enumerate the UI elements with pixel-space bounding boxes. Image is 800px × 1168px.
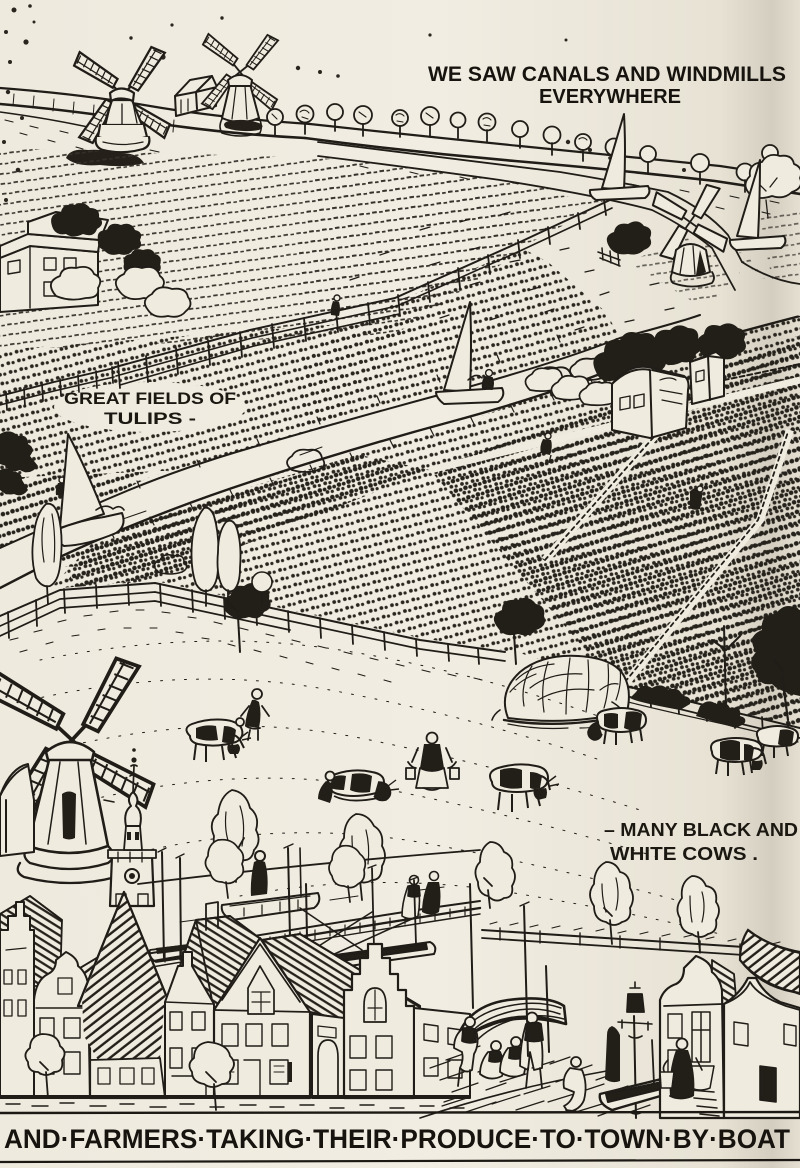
svg-text:TULIPS -: TULIPS - [104, 409, 196, 428]
svg-text:WE SAW CANALS AND WINDMILLS: WE SAW CANALS AND WINDMILLS [428, 63, 786, 86]
svg-text:– MANY BLACK AND: – MANY BLACK AND [604, 819, 798, 840]
svg-text:GREAT FIELDS OF: GREAT FIELDS OF [64, 389, 236, 408]
svg-text:WHITE COWS .: WHITE COWS . [610, 843, 758, 864]
svg-text:EVERYWHERE: EVERYWHERE [539, 85, 681, 108]
svg-text:AND·FARMERS·TAKING·THEIR·PRODU: AND·FARMERS·TAKING·THEIR·PRODUCE·TO·TOWN… [4, 1124, 790, 1154]
